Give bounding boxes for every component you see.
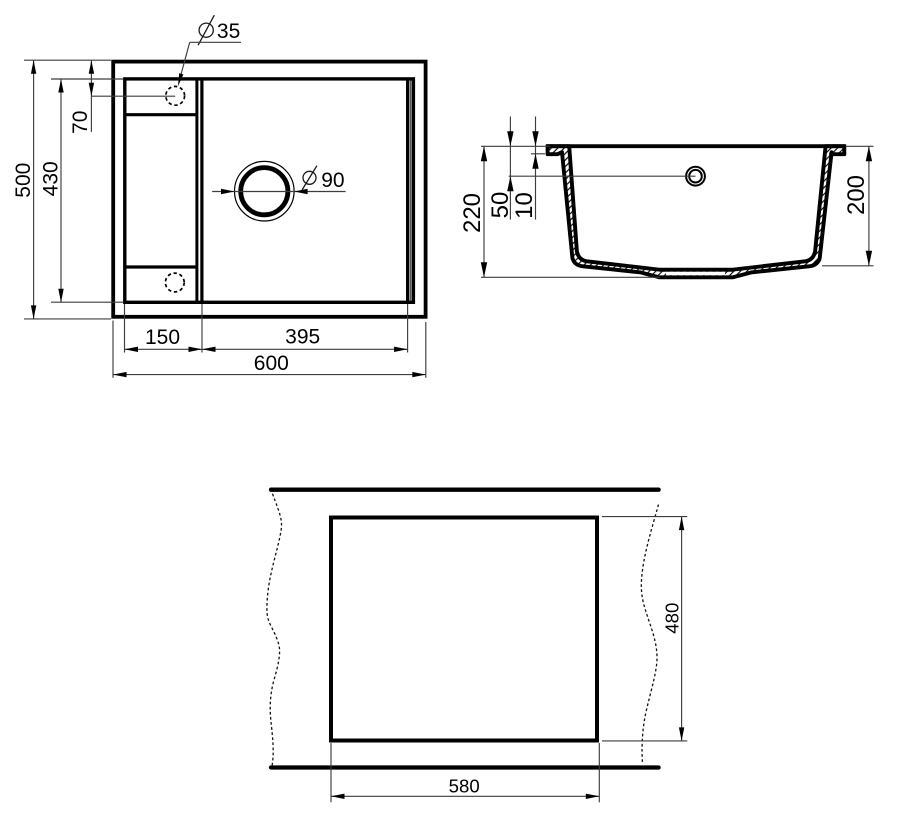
svg-text:580: 580 <box>449 775 480 796</box>
svg-text:35: 35 <box>217 20 240 43</box>
svg-text:220: 220 <box>459 193 486 233</box>
svg-text:10: 10 <box>511 192 538 219</box>
svg-text:600: 600 <box>254 352 289 375</box>
svg-text:70: 70 <box>69 111 92 134</box>
svg-text:395: 395 <box>285 326 320 349</box>
svg-text:430: 430 <box>40 161 63 196</box>
svg-text:480: 480 <box>662 603 683 634</box>
svg-text:150: 150 <box>145 326 180 349</box>
svg-text:200: 200 <box>843 175 870 215</box>
svg-text:500: 500 <box>12 163 35 198</box>
svg-text:90: 90 <box>321 169 344 192</box>
svg-text:50: 50 <box>487 192 514 219</box>
